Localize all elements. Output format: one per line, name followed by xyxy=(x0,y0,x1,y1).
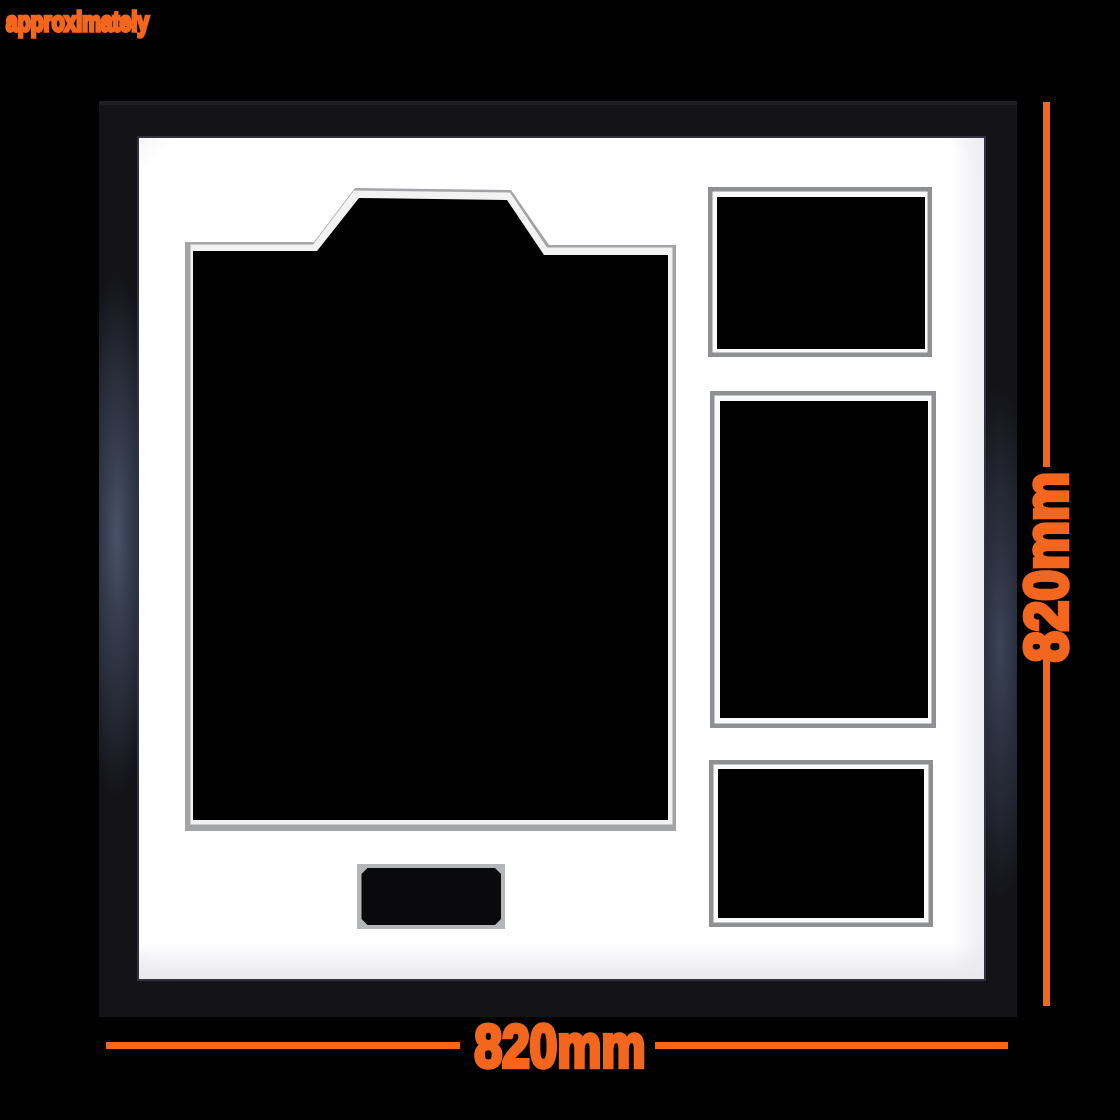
svg-text:820mm: 820mm xyxy=(1013,472,1080,662)
svg-text:approximately: approximately xyxy=(6,6,149,37)
svg-text:820mm: 820mm xyxy=(475,1013,646,1080)
